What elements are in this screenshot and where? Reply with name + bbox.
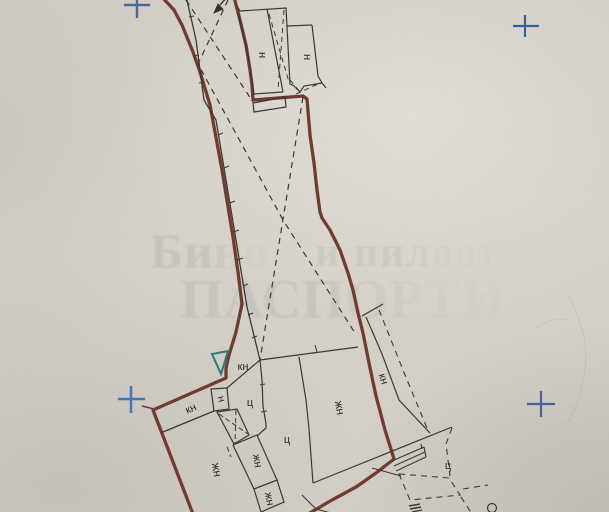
svg-text:ц: ц [445,460,452,472]
svg-text:жн: жн [209,462,223,478]
svg-text:жн: жн [332,400,346,416]
svg-text:н: н [256,52,268,58]
svg-text:кн: кн [238,361,249,373]
svg-text:ц: ц [284,434,291,446]
svg-text:жн: жн [262,491,276,506]
svg-text:ц: ц [247,397,254,409]
svg-text:н: н [301,54,313,60]
svg-text:жн: жн [250,453,264,468]
